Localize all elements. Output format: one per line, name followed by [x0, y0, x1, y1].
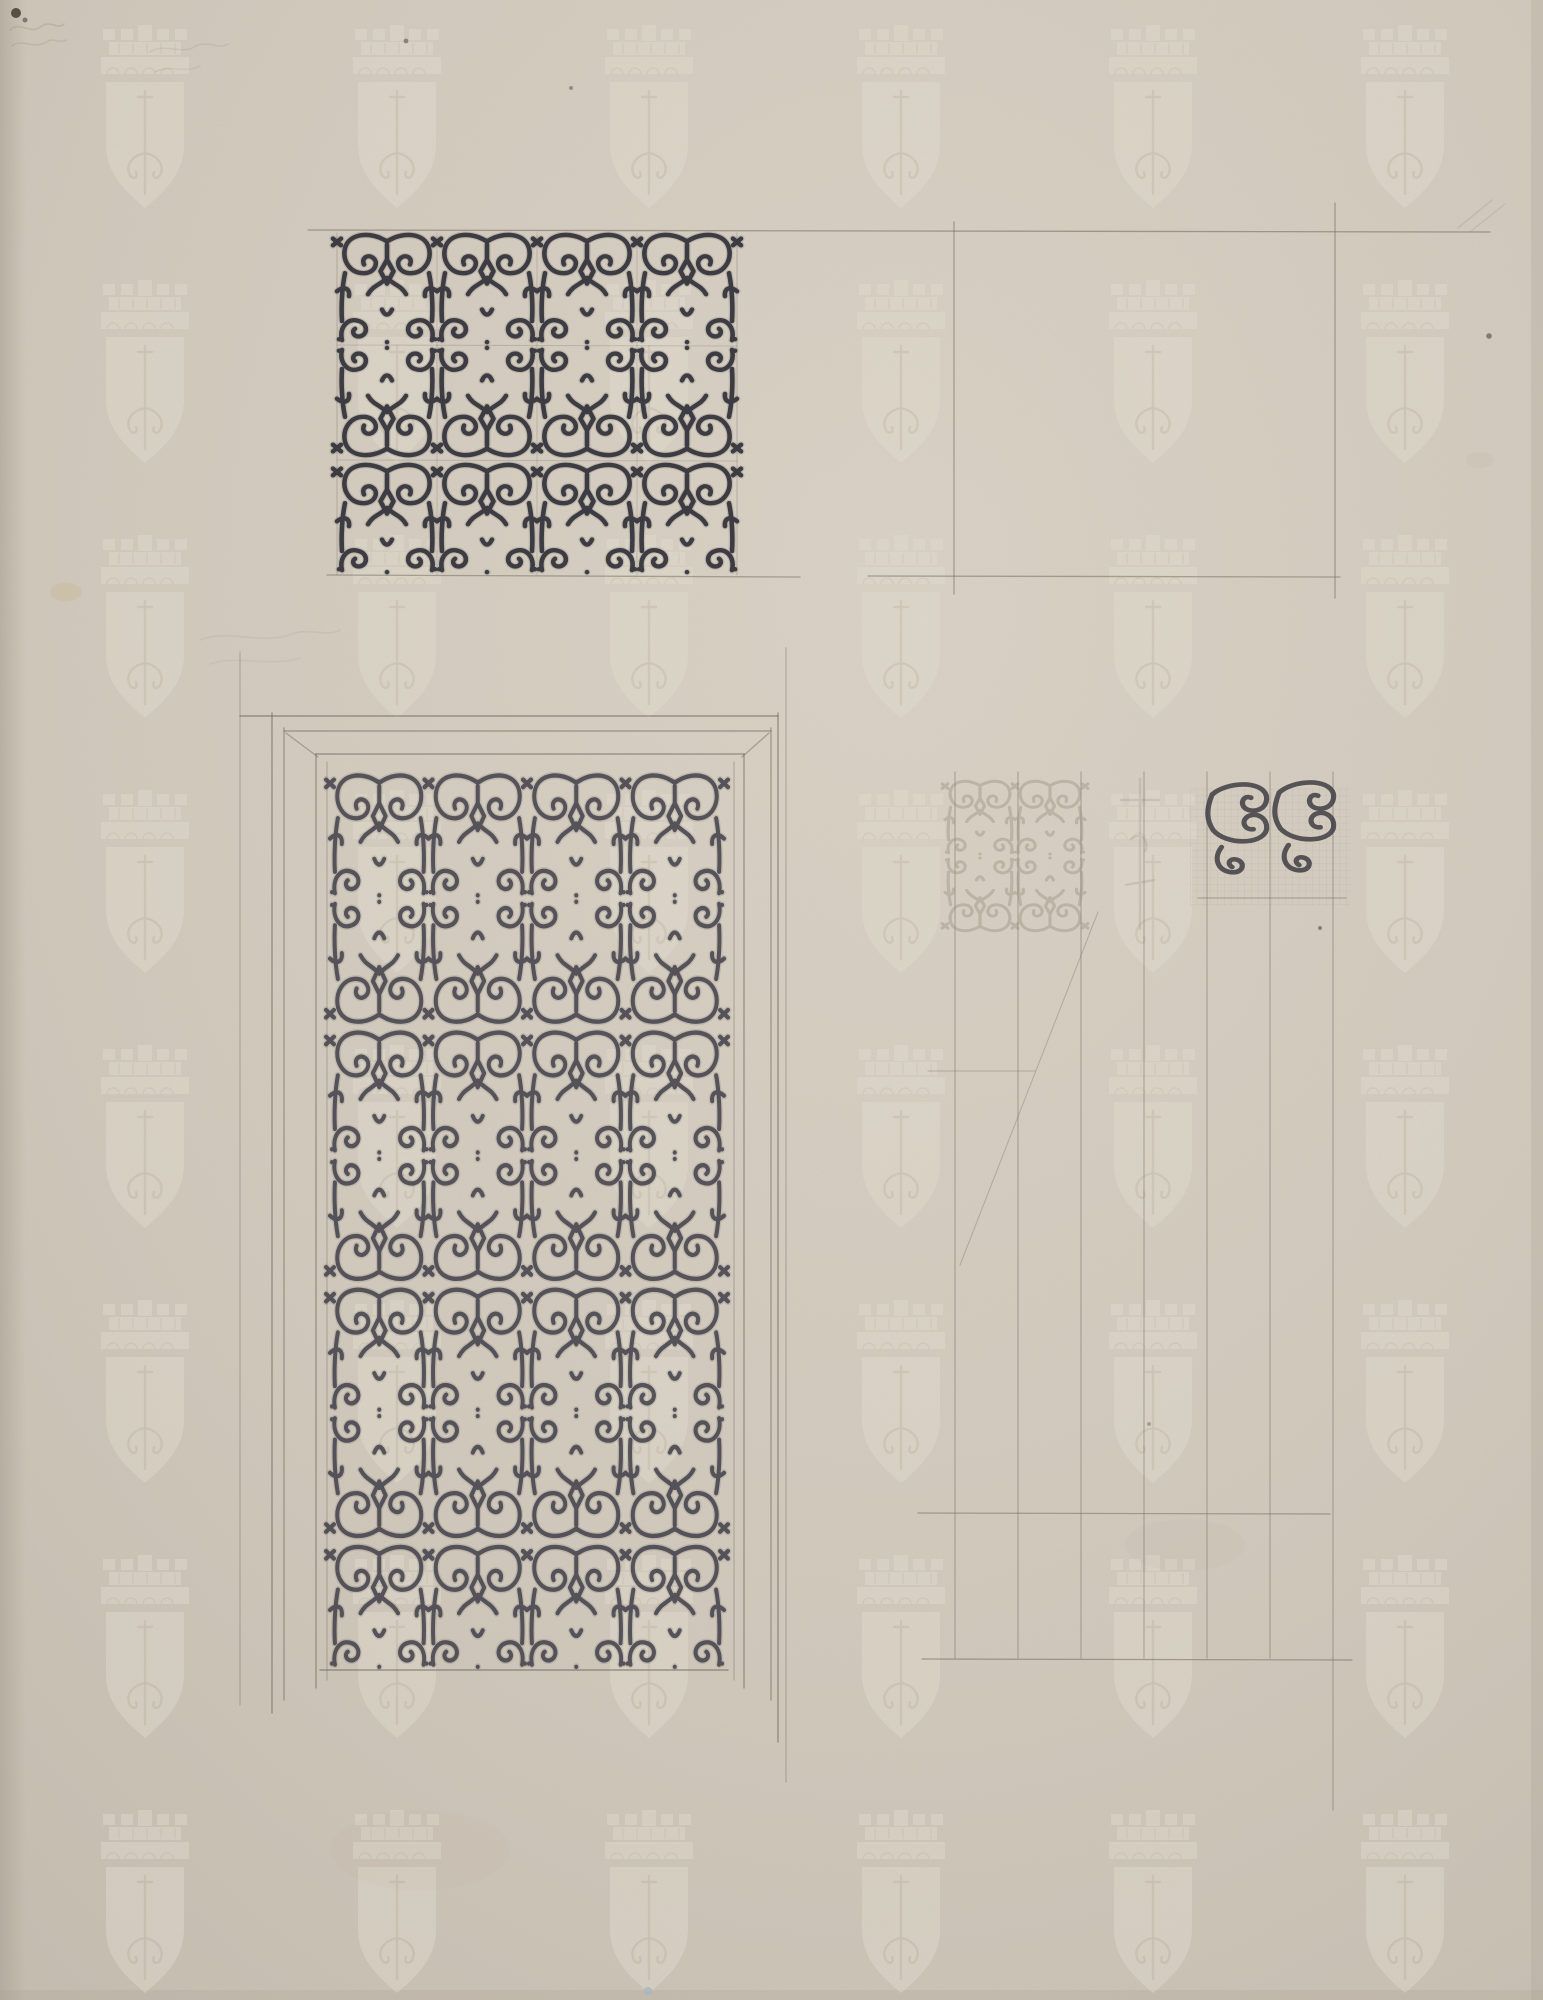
- paper-grain-overlay: [0, 0, 1543, 2000]
- drawing-surface: Design drawing of ornamental scrollwork …: [0, 0, 1543, 2000]
- scanned-drawing-sheet: Design drawing of ornamental scrollwork …: [0, 0, 1543, 2000]
